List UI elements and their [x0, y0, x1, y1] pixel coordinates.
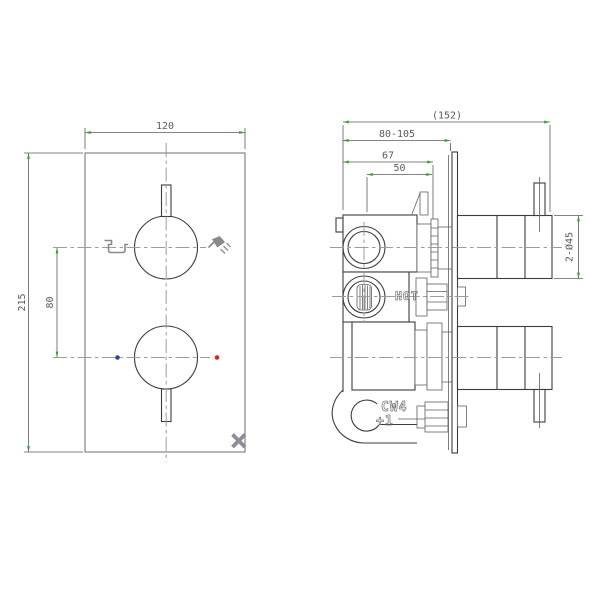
- lower-cartridge-fittings: [415, 323, 452, 390]
- dim-body-depth-label: 67: [382, 151, 394, 162]
- outlet-stub-through-plate: [458, 406, 467, 427]
- thermostatic-valve-drawing: 120 215 80: [0, 0, 600, 600]
- body-top-tab: [336, 218, 343, 232]
- dim-wall-adjust-label: 80-105: [379, 129, 415, 140]
- dim-overall-depth-label: (152): [432, 111, 462, 122]
- mounting-bracket-tab: [420, 192, 428, 215]
- dim-plate-height-label: 215: [17, 293, 28, 311]
- dim-plate-width-label: 120: [156, 121, 174, 132]
- cast-mark-line2: +1: [376, 414, 394, 429]
- hot-indicator-dot: [215, 355, 220, 360]
- wall-plate-side: [452, 152, 458, 453]
- dim-body-depth: 67: [343, 151, 433, 163]
- dim-wall-adjust-range: 80-105: [343, 129, 451, 141]
- dim-knob-spacing-label: 80: [45, 296, 56, 308]
- dim-knob-spacing: 80: [45, 248, 57, 358]
- technical-drawing-page: 120 215 80: [0, 0, 600, 600]
- outlet-elbow: [332, 390, 417, 443]
- cast-mark-line1: CW4: [381, 400, 407, 415]
- dim-overall-depth: (152): [343, 111, 550, 123]
- dim-port-depth-label: 50: [393, 163, 405, 174]
- brand-x-icon: [233, 435, 246, 448]
- side-view: (152) 80-105 67 50: [330, 111, 583, 454]
- dim-port-depth: 50: [367, 163, 432, 175]
- dim-plate-width: 120: [85, 121, 245, 149]
- shower-head-icon: [209, 237, 231, 254]
- front-view: 120 215 80: [17, 121, 245, 462]
- bath-spout-icon: [105, 241, 129, 253]
- dim-knob-diameter-label: 2-Ø45: [564, 232, 576, 262]
- cold-indicator-dot: [115, 355, 120, 360]
- thermostat-knob-side: [458, 177, 553, 279]
- bottom-outlet-fitting: [417, 402, 448, 432]
- flow-knob-side: [458, 327, 553, 429]
- hot-inlet-label: HOT: [395, 289, 419, 303]
